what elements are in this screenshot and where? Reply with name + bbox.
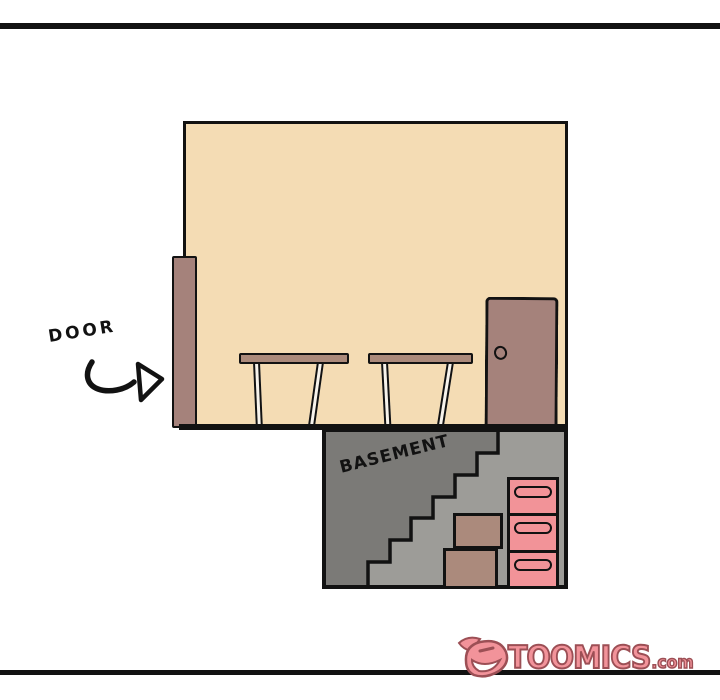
drawer-cabinet — [507, 477, 559, 589]
drawer — [510, 550, 556, 586]
basement-section: BASEMENT — [322, 428, 568, 589]
table2-top — [368, 353, 473, 364]
devil-face-icon — [456, 634, 514, 682]
logo-tld: .com — [651, 653, 693, 673]
door-knob-icon — [492, 344, 509, 361]
table1-top — [239, 353, 349, 364]
logo-text: TOOMICS.com — [508, 640, 694, 676]
curved-right-arrow-icon — [82, 352, 172, 408]
open-door-panel — [172, 256, 197, 428]
comic-panel: DOOR BASEMENT — [0, 0, 720, 700]
drawer-handle — [514, 486, 552, 498]
logo-brand: TOOMICS — [508, 640, 650, 676]
drawer-handle — [514, 559, 552, 571]
storage-box-lower — [443, 548, 498, 589]
interior-door — [485, 297, 559, 429]
toomics-watermark: TOOMICS.com — [456, 634, 716, 686]
storage-box-upper — [453, 513, 503, 549]
panel-top-border — [0, 23, 720, 29]
drawer — [510, 513, 556, 549]
floor-line — [179, 424, 568, 430]
room-left-wall — [183, 121, 186, 261]
drawer-handle — [514, 522, 552, 534]
drawer — [510, 480, 556, 513]
door-label: DOOR — [47, 317, 117, 347]
